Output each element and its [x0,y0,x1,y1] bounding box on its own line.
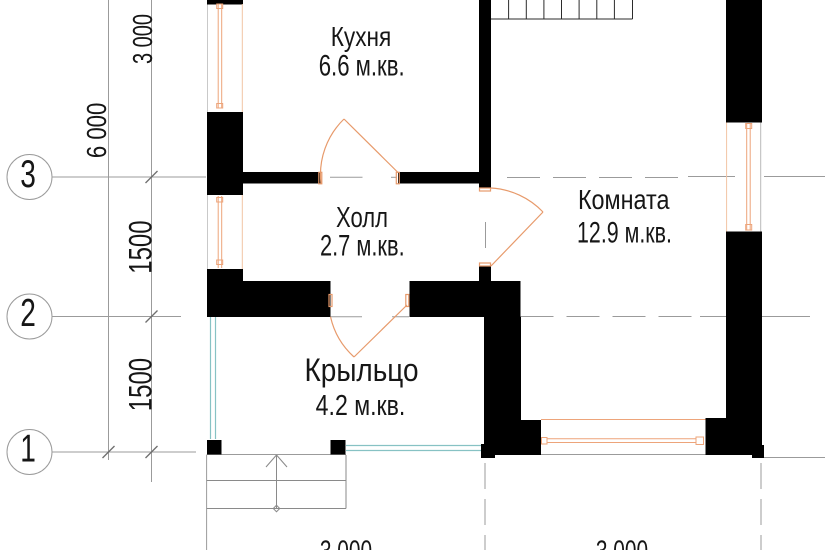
svg-text:2: 2 [20,292,36,336]
svg-text:3 000: 3 000 [320,535,372,550]
svg-text:3 000: 3 000 [128,14,159,64]
svg-text:4.2 м.кв.: 4.2 м.кв. [316,388,406,421]
svg-text:1500: 1500 [122,220,158,273]
svg-text:6.6 м.кв.: 6.6 м.кв. [319,48,405,82]
svg-text:Крыльцо: Крыльцо [305,353,419,388]
svg-text:1: 1 [20,427,36,471]
svg-text:2.7 м.кв.: 2.7 м.кв. [320,228,405,262]
svg-text:1500: 1500 [122,358,158,411]
svg-text:3 000: 3 000 [596,535,648,550]
svg-text:3: 3 [20,153,36,197]
svg-text:12.9 м.кв.: 12.9 м.кв. [577,215,672,250]
svg-text:Комната: Комната [578,185,670,215]
svg-text:6 000: 6 000 [82,103,113,158]
